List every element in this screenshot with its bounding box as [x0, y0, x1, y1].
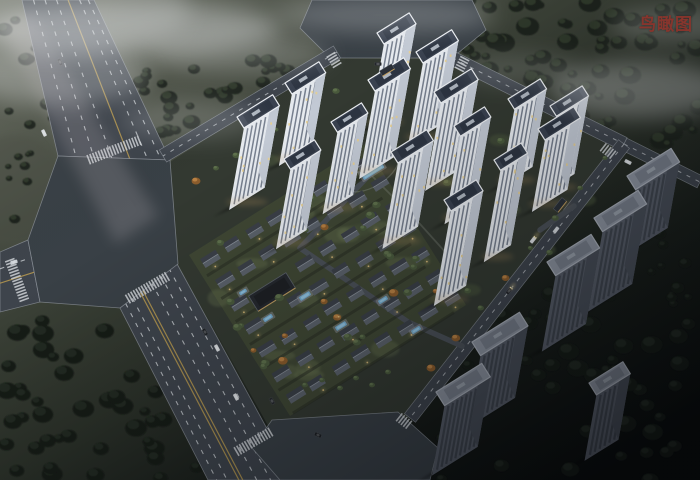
view-type-label: 鸟瞰图: [639, 10, 693, 35]
masterplan-birdseye-rendering: [0, 0, 700, 480]
aerial-render-viewport: 鸟瞰图: [0, 0, 700, 480]
lighting-vignette: [0, 0, 700, 480]
